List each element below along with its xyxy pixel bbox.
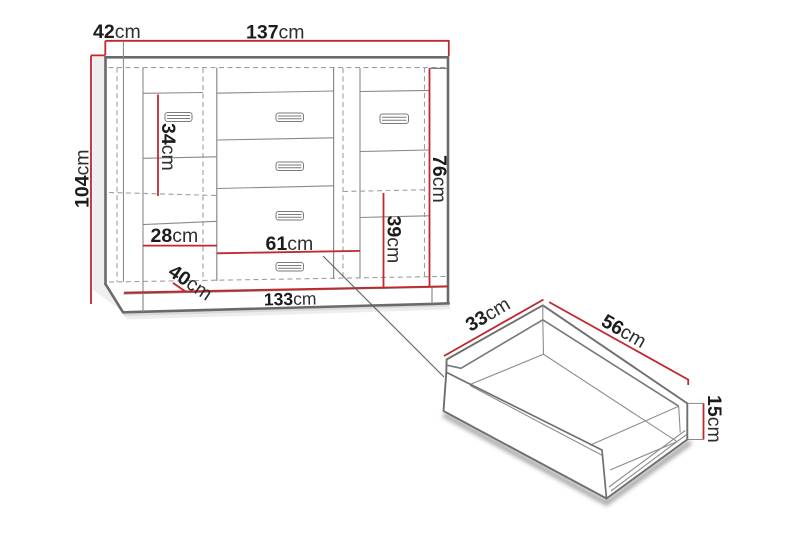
svg-text:137cm: 137cm <box>246 22 305 44</box>
svg-text:15cm: 15cm <box>703 395 725 443</box>
svg-text:28cm: 28cm <box>151 225 199 247</box>
svg-text:133cm: 133cm <box>264 288 317 309</box>
svg-text:34cm: 34cm <box>157 123 179 171</box>
svg-text:76cm: 76cm <box>428 155 450 203</box>
svg-text:61cm: 61cm <box>266 233 314 255</box>
svg-text:39cm: 39cm <box>383 216 405 264</box>
svg-text:42cm: 42cm <box>93 21 141 43</box>
svg-text:104cm: 104cm <box>72 149 94 208</box>
